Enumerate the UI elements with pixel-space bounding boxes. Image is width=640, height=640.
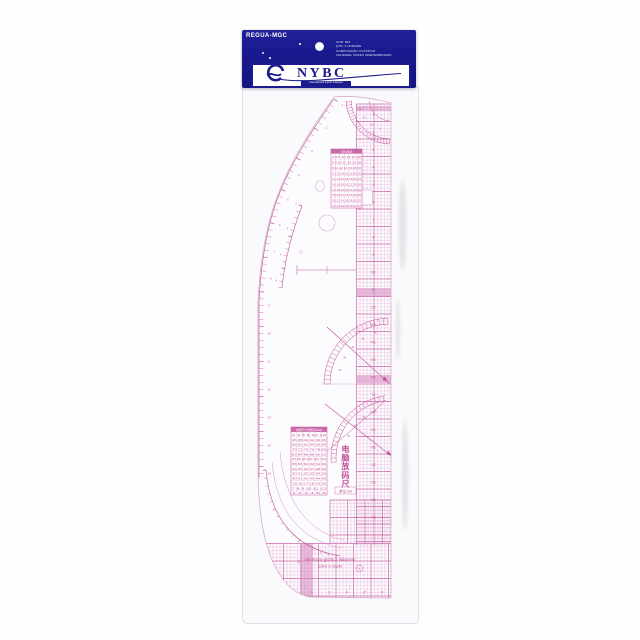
svg-text:24: 24 xyxy=(371,515,376,520)
svg-text:4 6 8 10 12 14 16: 4 6 8 10 12 14 16 xyxy=(332,155,361,159)
svg-text:16: 16 xyxy=(371,375,376,380)
product-photo: REGUA-MGC COR: MIX QTD: 1 UNIDADE COMPOS… xyxy=(0,0,640,640)
svg-text:22 24 26 28 30 32 34: 22 24 26 28 30 32 34 xyxy=(332,204,361,208)
svg-text:14: 14 xyxy=(371,340,376,345)
ruler-title-mirrored: Versatile Cutting-out Ruler xyxy=(304,557,356,562)
svg-text:24 25 26 27 28 29: 24 25 26 27 28 29 xyxy=(292,468,327,471)
made-in-mirrored: Made in china xyxy=(317,565,342,569)
svg-text:6 8 10 12 14 16 18: 6 8 10 12 14 16 18 xyxy=(332,161,361,165)
svg-text:58 60 62 64 66 68: 58 60 62 64 66 68 xyxy=(292,444,327,447)
svg-text:36 38 40 42 44 46: 36 38 40 42 44 46 xyxy=(292,439,327,442)
svg-text:2 4 6 8 10 12: 2 4 6 8 10 12 xyxy=(292,434,328,437)
svg-text:40 41 42 43 44 45: 40 41 42 43 44 45 xyxy=(292,478,327,481)
svg-text:15: 15 xyxy=(267,472,271,476)
svg-text:82 84 86 88 90 92: 82 84 86 88 90 92 xyxy=(292,453,327,456)
svg-text:15: 15 xyxy=(371,357,376,362)
svg-text:14: 14 xyxy=(267,444,271,448)
svg-text:尺码对照表: 尺码对照表 xyxy=(341,149,354,153)
ruler-outline xyxy=(258,96,391,598)
circled-mark: 4 xyxy=(359,567,361,571)
svg-text:10 12 14 16 18 20 22: 10 12 14 16 18 20 22 xyxy=(332,171,361,175)
svg-text:12: 12 xyxy=(371,305,376,310)
svg-text:12: 12 xyxy=(267,388,271,392)
svg-text:0: 0 xyxy=(275,590,278,595)
svg-text:常用尺寸对照表(CM): 常用尺寸对照表(CM) xyxy=(296,428,322,432)
svg-text:94 96 98 100 102 104: 94 96 98 100 102 104 xyxy=(292,458,327,461)
svg-text:7 8 9 10 11 12: 7 8 9 10 11 12 xyxy=(292,487,327,490)
svg-text:1 2 3 4 5 6: 1 2 3 4 5 6 xyxy=(292,492,328,495)
svg-text:13: 13 xyxy=(267,416,271,420)
svg-text:10: 10 xyxy=(371,270,376,275)
svg-text:21: 21 xyxy=(371,462,376,467)
svg-text:14 16 18 20 22 24 26: 14 16 18 20 22 24 26 xyxy=(332,182,361,186)
svg-text:8 10 12 14 16 18 20: 8 10 12 14 16 18 20 xyxy=(332,166,361,170)
svg-text:脑: 脑 xyxy=(340,453,349,463)
svg-text:22: 22 xyxy=(371,480,376,485)
grading-ruler: 1234567891011121314151617181920212223240… xyxy=(0,0,640,640)
svg-text:12 14 16 18 20 22 24: 12 14 16 18 20 22 24 xyxy=(332,177,361,181)
svg-text:23: 23 xyxy=(371,497,376,502)
unit-label: 单位:CM xyxy=(339,488,352,493)
svg-text:56 58 60 62 64 66: 56 58 60 62 64 66 xyxy=(292,463,327,466)
ruler-vertical-title: 电脑放码尺 xyxy=(340,444,350,488)
svg-text:15 16 17 18 19 20: 15 16 17 18 19 20 xyxy=(292,482,327,485)
svg-text:30 31 32 33 34 35: 30 31 32 33 34 35 xyxy=(292,473,327,476)
svg-text:19: 19 xyxy=(371,427,376,432)
svg-text:18 20 22 24 26 28 30: 18 20 22 24 26 28 30 xyxy=(332,193,361,197)
svg-text:70 72 74 76 78 80: 70 72 74 76 78 80 xyxy=(292,448,327,451)
svg-text:16 18 20 22 24 26 28: 16 18 20 22 24 26 28 xyxy=(332,188,361,192)
svg-text:20 22 24 26 28 30 32: 20 22 24 26 28 30 32 xyxy=(332,199,361,203)
svg-text:11: 11 xyxy=(268,360,271,364)
svg-text:20: 20 xyxy=(371,445,376,450)
svg-text:放: 放 xyxy=(340,461,350,471)
svg-text:电: 电 xyxy=(341,444,350,454)
svg-text:10: 10 xyxy=(267,332,271,336)
svg-text:17: 17 xyxy=(371,392,376,397)
